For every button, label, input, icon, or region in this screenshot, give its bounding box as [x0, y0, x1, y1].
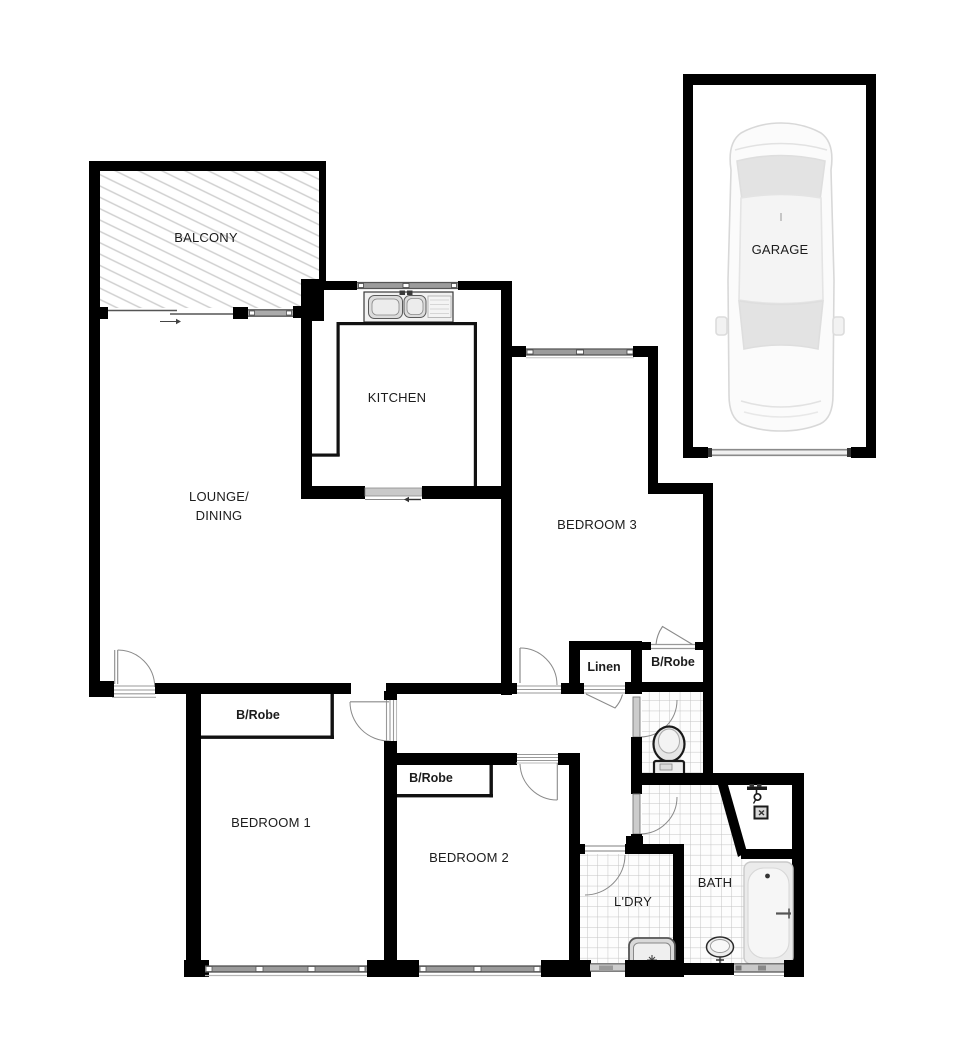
svg-text:GARAGE: GARAGE [752, 242, 809, 257]
svg-text:BEDROOM 2: BEDROOM 2 [429, 850, 509, 865]
svg-text:B/Robe: B/Robe [651, 655, 695, 669]
svg-text:BEDROOM 1: BEDROOM 1 [231, 815, 311, 830]
svg-text:L'DRY: L'DRY [614, 894, 652, 909]
svg-text:LOUNGE/: LOUNGE/ [189, 489, 249, 504]
svg-text:KITCHEN: KITCHEN [368, 390, 426, 405]
svg-text:Linen: Linen [587, 660, 620, 674]
svg-text:B/Robe: B/Robe [409, 771, 453, 785]
svg-text:B/Robe: B/Robe [236, 708, 280, 722]
svg-text:BALCONY: BALCONY [174, 230, 238, 245]
svg-text:DINING: DINING [196, 508, 243, 523]
svg-text:BEDROOM 3: BEDROOM 3 [557, 517, 637, 532]
svg-text:BATH: BATH [698, 875, 733, 890]
